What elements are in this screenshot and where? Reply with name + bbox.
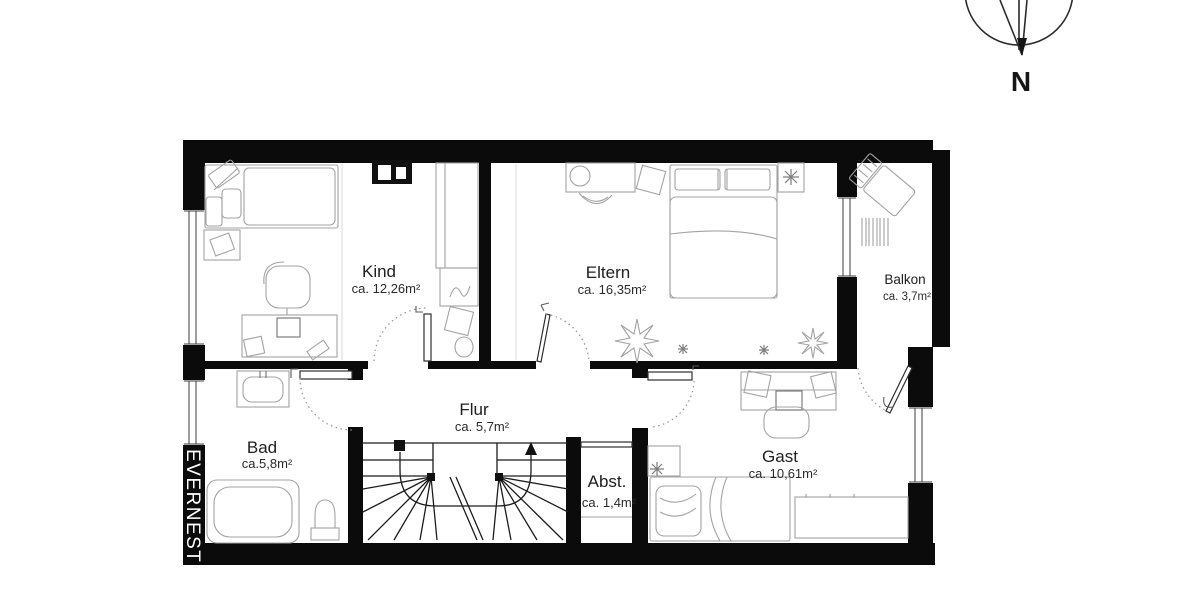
brand: EVERNEST	[182, 449, 203, 563]
walls	[183, 140, 950, 565]
bad-name: Bad	[247, 438, 277, 457]
flur-area: ca. 5,7m²	[455, 419, 510, 434]
room-label-bad: Bad ca.5,8m²	[242, 438, 293, 471]
door-balkon	[858, 366, 912, 413]
window-bad	[183, 380, 205, 445]
door-eltern	[537, 303, 589, 362]
room-label-eltern: Eltern ca. 16,35m²	[578, 263, 647, 297]
abst-area: ca. 1,4m²	[582, 495, 637, 510]
balkon-name: Balkon	[884, 272, 925, 287]
balkon-area: ca. 3,7m²	[883, 291, 931, 303]
door-bad	[291, 369, 352, 430]
bad-area: ca.5,8m²	[242, 456, 293, 471]
eltern-name: Eltern	[586, 263, 630, 282]
stair-up-arrow	[525, 442, 537, 455]
door-kind	[374, 306, 431, 361]
room-eltern-furniture	[516, 163, 828, 363]
kind-name: Kind	[362, 262, 396, 281]
abst-door	[581, 442, 632, 447]
room-balkon-furniture	[849, 153, 916, 246]
floorplan-drawing: Kind ca. 12,26m² Eltern ca. 16,35m²	[0, 0, 1200, 600]
room-label-gast: Gast ca. 10,61m²	[749, 447, 818, 481]
compass-icon: N	[965, 0, 1073, 97]
window-eltern-balkon	[837, 197, 857, 277]
room-kind-furniture	[204, 159, 478, 360]
kind-area: ca. 12,26m²	[352, 281, 421, 296]
gast-name: Gast	[762, 447, 798, 466]
flur-name: Flur	[459, 400, 489, 419]
room-label-flur: Flur ca. 5,7m²	[455, 400, 510, 434]
windows	[183, 197, 933, 483]
window-gast	[908, 407, 933, 483]
floorplan-page: Kind ca. 12,26m² Eltern ca. 16,35m²	[0, 0, 1200, 600]
room-label-balkon: Balkon ca. 3,7m²	[883, 272, 931, 303]
room-label-kind: Kind ca. 12,26m²	[352, 262, 421, 296]
window-kind	[183, 210, 205, 345]
meter-box-icon	[372, 160, 412, 184]
gast-area: ca. 10,61m²	[749, 466, 818, 481]
door-gast	[648, 366, 699, 427]
abst-name: Abst.	[588, 472, 627, 491]
staircase	[362, 440, 568, 540]
brand-wordmark: EVERNEST	[182, 449, 203, 563]
room-label-abstellraum: Abst. ca. 1,4m²	[582, 472, 637, 510]
compass-north-label: N	[1011, 66, 1031, 97]
eltern-area: ca. 16,35m²	[578, 282, 647, 297]
